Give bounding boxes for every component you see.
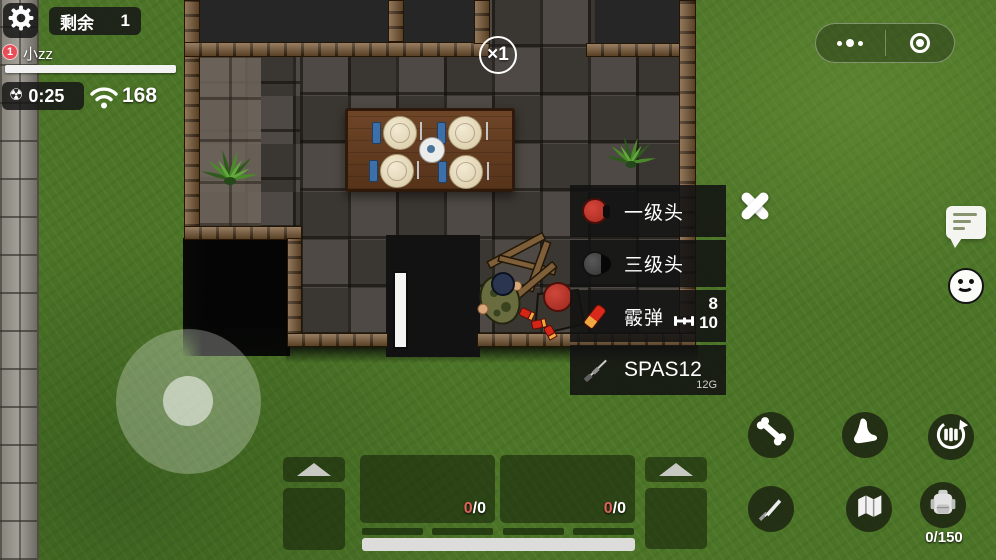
dining-table xyxy=(345,108,515,192)
teacup xyxy=(419,137,445,163)
knife-icon xyxy=(754,490,788,529)
wall xyxy=(287,238,302,347)
ammo-counter: 0/0 xyxy=(464,500,486,518)
joystick-knob[interactable] xyxy=(163,376,213,426)
bone-icon xyxy=(754,416,788,455)
player-rank-badge: 1 xyxy=(2,44,18,60)
reload-button[interactable] xyxy=(928,414,974,460)
ping-value: 168 xyxy=(122,82,157,110)
loot-item-helmet1[interactable]: 一级头 xyxy=(570,185,726,237)
loot-item-helmet3[interactable]: 三级头 xyxy=(570,240,726,287)
door xyxy=(393,271,408,349)
segment-bar xyxy=(503,528,564,535)
dark-room xyxy=(197,0,476,42)
cutlery xyxy=(486,122,488,140)
badge-number: 1 xyxy=(7,46,13,58)
player-name: 小zz xyxy=(23,43,53,64)
backpack-icon xyxy=(926,486,960,525)
weapon-slot-1[interactable]: 0/0 xyxy=(360,455,495,523)
shotgun-icon xyxy=(579,352,611,388)
fern-plant xyxy=(602,130,660,193)
kick-button[interactable] xyxy=(842,412,888,458)
ammo-count: 8 xyxy=(674,294,718,313)
napkin xyxy=(369,160,378,182)
radiation-timer: ☢ 0:25 xyxy=(2,82,84,110)
emote-button[interactable] xyxy=(948,268,984,304)
chat-bubble-icon xyxy=(953,213,977,216)
game-screen: ×1 剩余 1 1 小zz ☢ 0:2 xyxy=(0,0,996,560)
loot-item-shells[interactable]: 霰弹 8 10 xyxy=(570,290,726,342)
plate xyxy=(448,116,482,150)
loot-item-label: 一级头 xyxy=(624,198,684,225)
wifi-icon xyxy=(88,83,120,115)
fern-plant xyxy=(198,143,262,212)
cutlery xyxy=(417,161,419,179)
segment-bar xyxy=(362,528,423,535)
map-button[interactable] xyxy=(846,486,892,532)
loot-item-label: 霰弹 xyxy=(624,303,664,330)
players-remaining-counter: 剩余 1 xyxy=(49,7,141,35)
loot-item-label: SPAS12 xyxy=(624,358,702,382)
item-slot-left[interactable] xyxy=(283,488,345,550)
map-icon xyxy=(852,491,886,528)
player-character xyxy=(470,255,540,345)
more-button[interactable] xyxy=(816,24,885,62)
up-arrow-icon xyxy=(659,463,693,476)
capacity-icon xyxy=(674,314,694,332)
stamina-bar xyxy=(362,538,635,551)
plate xyxy=(383,116,417,150)
ammo-capacity: 10 xyxy=(699,313,718,333)
wall xyxy=(586,43,682,57)
ammo-counts: 8 10 xyxy=(674,294,718,333)
multiplier-text: ×1 xyxy=(487,44,509,66)
segment-bar xyxy=(432,528,493,535)
expand-right-button[interactable] xyxy=(645,457,707,482)
health-bar xyxy=(5,65,176,73)
circle-dot-icon xyxy=(910,33,930,53)
up-arrow-icon xyxy=(297,463,331,476)
helmet-level1-icon xyxy=(579,198,611,224)
loot-item-spas12[interactable]: SPAS12 12G xyxy=(570,345,726,395)
cutlery xyxy=(487,162,489,180)
shotgun-shell-icon xyxy=(579,304,611,329)
radiation-icon: ☢ xyxy=(9,88,23,104)
wall xyxy=(388,0,404,42)
three-dots-icon xyxy=(837,41,842,46)
plate xyxy=(449,155,483,189)
remaining-label: 剩余 xyxy=(60,9,94,34)
dropped-helmet xyxy=(543,282,573,312)
loot-panel: 一级头 三级头 霰弹 8 10 xyxy=(570,185,726,395)
caliber-label: 12G xyxy=(696,379,717,391)
wall xyxy=(184,42,490,57)
item-slot-right[interactable] xyxy=(645,488,707,549)
plate xyxy=(380,154,414,188)
chat-button[interactable] xyxy=(946,206,986,239)
backpack-capacity: 0/150 xyxy=(908,529,980,546)
helmet-level3-icon xyxy=(579,251,611,277)
exit-button[interactable] xyxy=(886,24,955,62)
radiation-time: 0:25 xyxy=(28,86,64,107)
weapon-slot-2[interactable]: 0/0 xyxy=(500,455,635,523)
cutlery xyxy=(420,122,422,140)
wall xyxy=(474,0,490,44)
segment-bar xyxy=(573,528,634,535)
speed-multiplier-badge[interactable]: ×1 xyxy=(479,36,517,74)
wall xyxy=(184,226,302,240)
foot-icon xyxy=(849,417,881,454)
reload-icon xyxy=(933,417,969,458)
napkin xyxy=(438,161,447,183)
mini-program-capsule xyxy=(815,23,955,63)
gear-icon xyxy=(7,4,35,37)
close-button[interactable] xyxy=(736,187,774,225)
remaining-value: 1 xyxy=(121,11,130,31)
wall xyxy=(287,333,388,347)
melee-button[interactable] xyxy=(748,486,794,532)
loot-item-label: 三级头 xyxy=(624,250,684,277)
bone-button[interactable] xyxy=(748,412,794,458)
napkin xyxy=(372,122,381,144)
ammo-counter: 0/0 xyxy=(604,500,626,518)
backpack-button[interactable] xyxy=(920,482,966,528)
dark-room xyxy=(595,0,679,43)
settings-button[interactable] xyxy=(3,3,38,38)
expand-left-button[interactable] xyxy=(283,457,345,482)
